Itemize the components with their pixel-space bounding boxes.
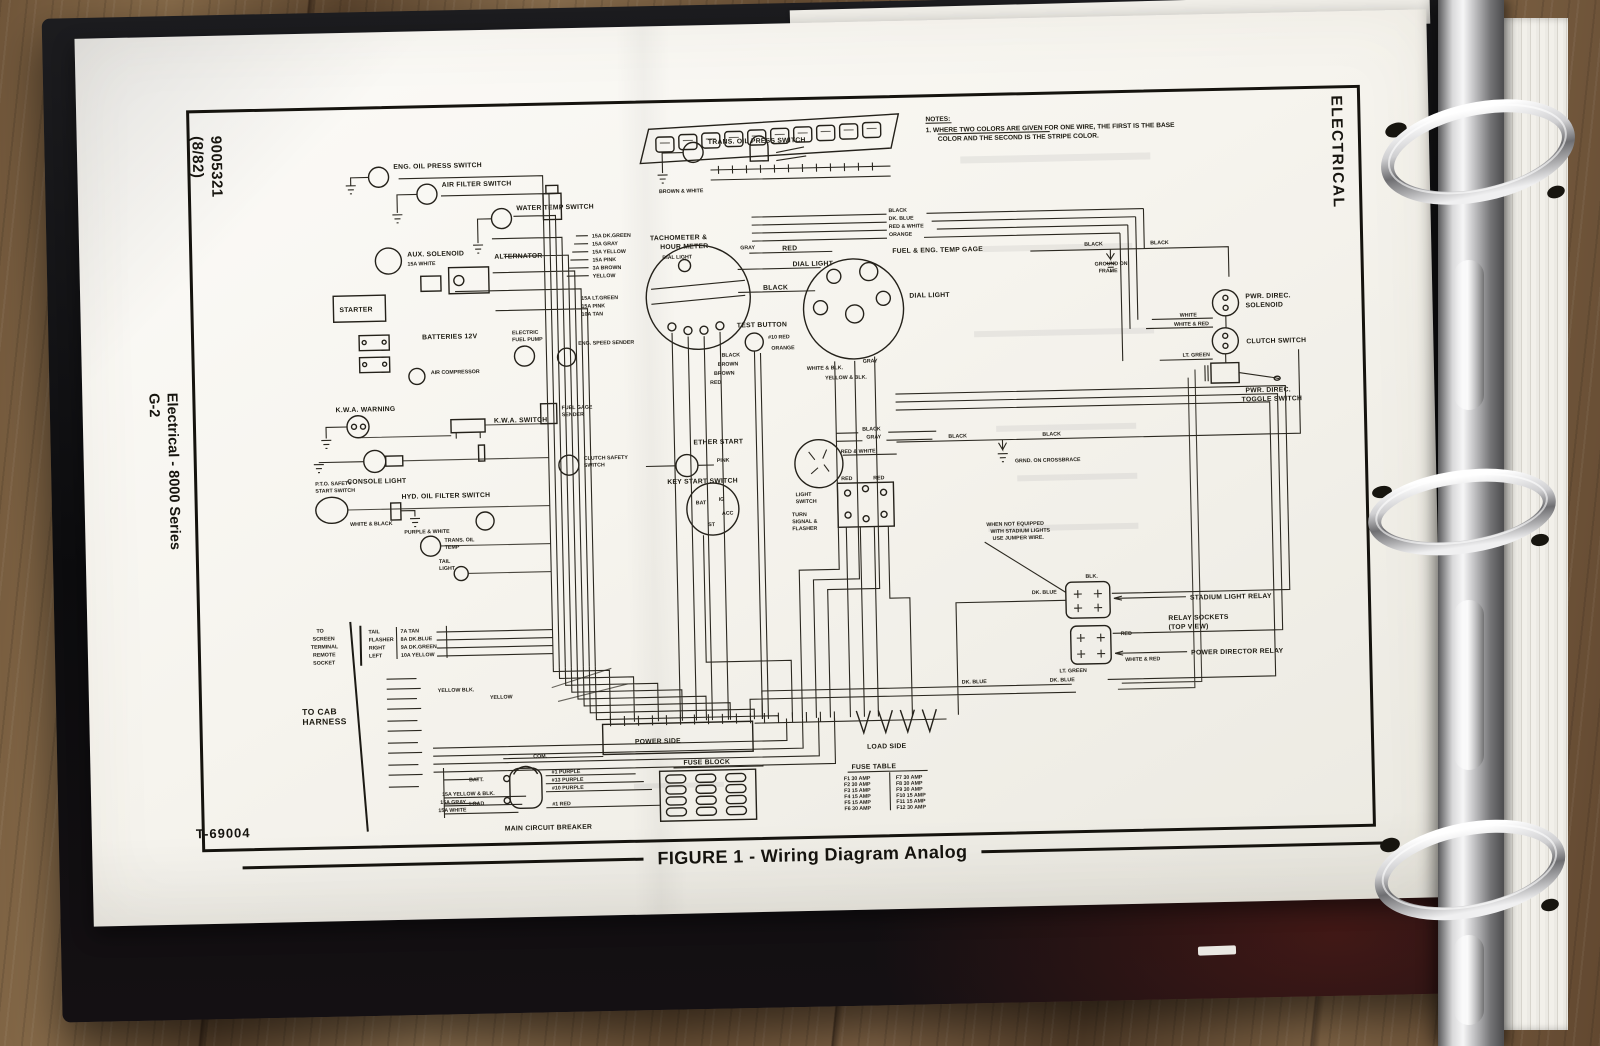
breaker-w2: #13 PURPLE [552,777,584,784]
turn-signal-flasher-box [837,482,894,527]
light-switch-label-1: LIGHT [796,492,813,498]
eng-speed-sender-label: ENG. SPEED SENDER [578,340,634,347]
batteries-label: BATTERIES 12V [422,333,478,341]
tb-power-cap [546,185,558,193]
relay-sockets-label-1: RELAY SOCKETS [1168,614,1229,622]
bundle-black: BLACK [888,208,907,214]
black-right-2: BLACK [1150,240,1169,246]
trans-oil-temp-symbol [420,536,440,556]
relay-socket-1 [1066,581,1111,618]
section-label: Electrical - 8000 Series G-2 [144,393,184,551]
top-right-bundle: BLACK DK. BLUE RED & WHITE ORANGE [751,203,1144,242]
eng-oil-press-switch-label: ENG. OIL PRESS SWITCH [393,162,482,171]
key-st: ST [708,522,716,528]
electric-fuel-pump-label-1: ELECTRIC [512,330,539,337]
section-text: Electrical - 8000 Series [163,393,182,551]
main-breaker-label: MAIN CIRCUIT BREAKER [505,824,592,833]
purple-white-wire: PURPLE & WHITE [404,529,450,536]
console-light-symbol [364,450,386,472]
power-director-relay-label: POWER DIRECTOR RELAY [1191,648,1284,657]
dk-blue-run-1: DK. BLUE [962,679,988,686]
stadium-note-3: USE JUMPER WIRE. [993,535,1045,542]
turn-label-2: SIGNAL & [792,519,818,526]
tail-light-symbol [454,566,468,580]
clutch-safety-label-2: SWITCH [584,462,605,468]
right-page-stack [1500,18,1568,1030]
ground-frame-label-1: GROUND ON [1095,261,1128,268]
socket-row-left-wire: 10A YELLOW [401,652,435,659]
aux-solenoid-symbol [375,248,402,275]
turn-black: BLACK [862,426,881,432]
socket-intro-3: TERMINAL [311,644,339,651]
notes-title: NOTES: [925,116,950,124]
wire-10a-tan: 10A TAN [582,311,604,317]
electric-fuel-pump-label-2: FUEL PUMP [512,337,543,344]
kwa-switch-symbol [451,419,485,433]
brown-white-wire-label: BROWN & WHITE [659,188,704,195]
relay-socket-2 [1071,625,1112,664]
water-temp-switch-label: WATER TEMP SWITCH [516,204,594,213]
turn-red-2: RED [873,475,884,481]
toggle-label-1: PWR. DIREC. [1245,386,1291,394]
key-bat: BAT [696,500,707,506]
light-switch-label-2: SWITCH [796,499,817,505]
ether-start-label: ETHER START [693,438,744,446]
brown-stack-2: BROWN [714,371,735,377]
breaker-w3: #10 PURPLE [552,785,584,792]
fuses [666,773,747,816]
paper-sliver [1198,945,1236,955]
stadium-relay-label: STADIUM LIGHT RELAY [1190,593,1272,602]
tach-label-1: TACHOMETER & [650,234,707,242]
clutch-switch-label: CLUTCH SWITCH [1246,337,1306,345]
load-side-label: LOAD SIDE [867,743,907,751]
water-temp-switch-symbol [491,208,511,228]
spine-ridge-2 [1454,600,1484,770]
wire-15a-dkgreen: 15A DK.GREEN [592,233,631,240]
dial-light-label-b: DIAL LIGHT [792,260,833,268]
alternator-box [449,267,490,294]
harness-15a-yellow-blk: 15A YELLOW & BLK. [442,791,495,798]
caption-rule-left [243,858,644,870]
gray-wire-2: GRAY [863,358,878,364]
wire-15a-ltgreen: 15A LT.GREEN [581,295,618,302]
black-cross-1: BLACK [948,433,967,439]
turn-label-1: TURN [792,512,807,518]
turn-gray: GRAY [866,434,881,440]
eng-speed-sender-symbol [557,348,575,366]
test-button-label: TEST BUTTON [737,321,787,329]
black-stack-1: BLACK [721,352,740,358]
relay-area: WHEN NOT EQUIPPED WITH STADIUM LIGHTS US… [746,516,1285,720]
aux-solenoid-wire: 15A WHITE [407,261,436,268]
tail-light-label-2: LIGHT [439,566,456,572]
power-side-label: POWER SIDE [635,738,681,746]
socket-row-flasher: FLASHER [369,637,394,644]
battery-2 [359,357,389,373]
yellow-blk-wire: YELLOW & BLK. [825,375,867,382]
socket-intro-4: REMOTE [313,652,336,659]
bundle-orange: ORANGE [889,232,913,239]
wire-3a-brown: 3A BROWN [593,265,622,272]
white-wire: WHITE [1180,312,1198,318]
trans-oil-temp-label-1: TRANS. OIL [444,537,475,544]
wiring-schematic: NOTES: 1. WHERE TWO COLORS ARE GIVEN FOR… [189,88,1373,849]
air-compressor-label: AIR COMPRESSOR [431,369,480,376]
starter-label: STARTER [339,306,372,314]
socket-row-flasher-wire: 8A DK.BLUE [401,636,433,643]
test-button-symbol [745,333,763,351]
relay-red: RED [1121,631,1132,637]
black-right-1: BLACK [1084,241,1103,247]
socket-intro-1: TO [316,629,323,635]
caption-rule-right [981,842,1382,854]
fuel-temp-gage-symbol [802,258,904,360]
socket-intro-2: SCREEN [313,636,335,642]
aux-solenoid-label: AUX. SOLENOID [407,250,464,258]
fuse-block: FUSE BLOCK [659,758,764,821]
notes-line2: COLOR AND THE SECOND IS THE STRIPE COLOR… [938,133,1099,144]
dial-light-label-c: DIAL LIGHT [909,292,950,300]
num10-red-wire: #10 RED [768,334,790,340]
relay-white-red: WHITE & RED [1125,656,1160,663]
drawing-number: T-69004 [196,825,251,841]
mid-left-components: K.W.A. WARNING K.W.A. SWITCH CONSOLE LIG… [313,403,551,584]
socket-row-right-wire: 9A DK.GREEN [401,644,437,651]
fuse-table: FUSE TABLE F1 30 AMP F7 30 AMP F2 30 AMP… [843,762,928,812]
notes-block: NOTES: 1. WHERE TWO COLORS ARE GIVEN FOR… [925,111,1175,143]
grnd-crossbrace-label: GRND. ON CROSSBRACE [1015,457,1081,464]
relay-blk: BLK. [1085,574,1098,580]
eng-oil-press-switch-symbol [368,167,388,187]
breaker-w4: #1 RED [552,801,571,807]
top-left-switches: ENG. OIL PRESS SWITCH AIR FILTER SWITCH … [345,135,808,256]
hyd-oil-filter-label: HYD. OIL FILTER SWITCH [401,492,490,501]
pto-safety-start-switch-symbol [316,497,349,524]
bundle-dk-blue: DK. BLUE [889,216,915,223]
wire-15a-pink: 15A PINK [592,257,616,264]
harness-15a-white: 15A WHITE [438,807,467,814]
ether-start-symbol [676,454,698,476]
gray-wire-top: GRAY [740,245,755,251]
red-wire-label: RED [782,245,797,252]
manual-page: 9005321 (8/82) Electrical - 8000 Series … [74,9,1445,926]
console-light-label: CONSOLE LIGHT [347,478,407,486]
red-stack-1: RED [710,380,721,386]
socket-intro-5: SOCKET [313,660,336,666]
page-number-text: G-2 [145,393,162,418]
turn-red-1: RED [841,476,852,482]
breaker-load: LOAD [469,801,484,807]
photo-of-binder-page: { "binder": { "side_tab": "ELECTRICAL" }… [0,0,1600,1046]
yellow-blk-diag: YELLOW BLK. [438,687,475,694]
wire-yellow: YELLOW [593,273,616,279]
indicator-light-panel: BROWN & WHITE [639,114,900,196]
electric-fuel-pump-symbol [514,346,534,366]
crossbrace-ground: BLACK BLACK GRND. ON CROSSBRACE [895,349,1301,467]
fuse-block-label: FUSE BLOCK [683,759,730,767]
air-compressor-symbol [409,368,425,384]
clutch-switch-symbol [1212,328,1239,355]
center-switch-cluster: ETHER START PINK KEY START SWITCH BAT IG… [645,425,938,536]
tail-light-label-1: TAIL [439,559,451,565]
regulator-box [421,276,441,291]
relay-dk-blue: DK. BLUE [1032,590,1058,597]
orange-wire-center: ORANGE [771,345,795,352]
air-filter-switch-symbol [417,184,437,204]
cab-harness-label-2: HARNESS [302,716,347,727]
caption-text: FIGURE 1 - Wiring Diagram Analog [657,842,967,870]
pwr-solenoid-label-2: SOLENOID [1246,302,1284,310]
work-light-symbol [476,512,494,530]
screen-terminal-socket: TO SCREEN TERMINAL REMOTE SOCKET TAIL 7A… [310,624,447,667]
breaker-w1: #1 PURPLE [552,769,581,776]
breaker-batt: BATT. [469,777,484,783]
white-blk-wire: WHITE & BLK. [807,365,844,372]
relay-lt-green: LT. GREEN [1059,668,1087,675]
dial-light-label-a: DIAL LIGHT [662,254,693,261]
clutch-safety-switch-symbol [559,455,579,475]
spine-ridge-1 [1454,260,1484,410]
wire-15a-gray: 15A GRAY [592,241,618,248]
white-black-wire: WHITE & BLACK [350,521,393,528]
socket-row-tail-wire: 7A TAN [400,628,419,634]
fuel-temp-gage-label: FUEL & ENG. TEMP GAGE [892,246,983,255]
socket-row-left: LEFT [369,653,383,659]
bundle-red-white: RED & WHITE [889,223,925,230]
gauge-cluster: TACHOMETER & HOUR METER GRAY DIAL LIGHT … [645,228,986,387]
turn-label-3: FLASHER [792,526,817,533]
hyd-oil-filter-symbol [391,503,401,520]
notes-line1: 1. WHERE TWO COLORS ARE GIVEN FOR ONE WI… [926,122,1176,134]
air-filter-switch-label: AIR FILTER SWITCH [442,180,512,189]
yellow-diag: YELLOW [490,694,513,700]
lt-green-wire: LT. GREEN [1183,352,1211,359]
spine-ridge-3 [1454,935,1484,1025]
black-cross-2: BLACK [1042,431,1061,437]
fuel-gage-sender-label-2: SENDER [562,412,584,418]
socket-row-tail: TAIL [368,629,380,635]
dk-blue-run-2: DK. BLUE [1050,677,1076,684]
breaker-com: COM. [533,754,547,760]
right-switchgear: BLACK BLACK GROUND ON FRAME PWR. DIREC. … [1030,237,1307,408]
pto-label-1: P.T.O. SAFETY [315,481,352,488]
fuse-row-5r: F12 30 AMP [896,804,926,811]
pwr-direc-solenoid-symbol [1212,290,1239,317]
binder-spine [1438,0,1504,1046]
relay-sockets-label-2: (TOP VIEW) [1169,623,1209,631]
battery-1 [359,335,389,351]
fuse-row-5l: F6 30 AMP [844,806,871,813]
tachometer-symbol [645,244,751,350]
pwr-solenoid-label-1: PWR. DIREC. [1245,292,1291,300]
black-wire-label-center: BLACK [763,284,788,292]
kwa-warning-label: K.W.A. WARNING [336,406,396,414]
pto-label-2: START SWITCH [315,488,355,495]
socket-row-right: RIGHT [369,645,386,651]
toggle-switch-body [1211,363,1239,384]
fuse-table-title: FUSE TABLE [851,763,896,771]
ground-frame-label-2: FRAME [1099,268,1118,274]
schematic-frame: NOTES: 1. WHERE TWO COLORS ARE GIVEN FOR… [186,85,1376,852]
wire-15a-yellow: 15A YELLOW [592,249,626,256]
